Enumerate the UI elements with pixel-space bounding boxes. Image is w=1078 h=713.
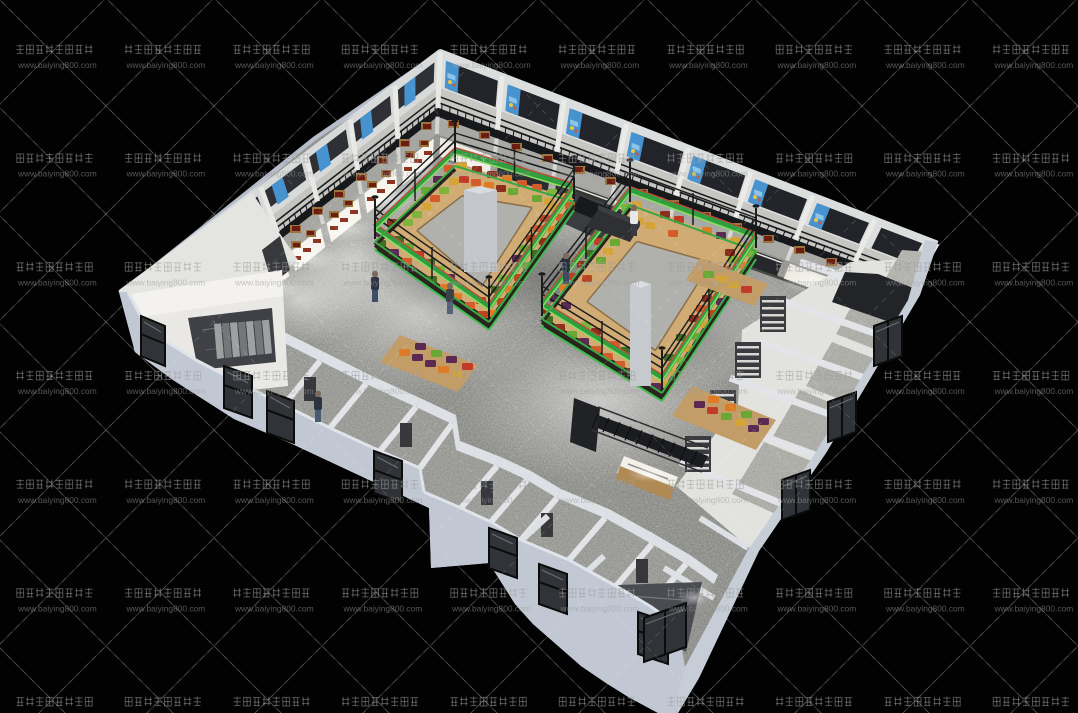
svg-text:www.baiying800.com: www.baiying800.com xyxy=(126,604,206,614)
svg-text:www.baiying800.com: www.baiying800.com xyxy=(17,60,97,70)
svg-text:www.baiying800.com: www.baiying800.com xyxy=(343,60,423,70)
svg-text:www.baiying800.com: www.baiying800.com xyxy=(885,604,965,614)
svg-text:www.baiying800.com: www.baiying800.com xyxy=(994,60,1074,70)
svg-text:www.baiying800.com: www.baiying800.com xyxy=(343,604,423,614)
svg-text:www.baiying800.com: www.baiying800.com xyxy=(668,169,748,179)
svg-text:www.baiying800.com: www.baiying800.com xyxy=(17,495,97,505)
svg-text:www.baiying800.com: www.baiying800.com xyxy=(777,277,857,287)
svg-text:www.baiying800.com: www.baiying800.com xyxy=(560,386,640,396)
svg-text:www.baiying800.com: www.baiying800.com xyxy=(234,169,314,179)
svg-text:www.baiying800.com: www.baiying800.com xyxy=(451,495,531,505)
svg-text:www.baiying800.com: www.baiying800.com xyxy=(451,386,531,396)
svg-text:www.baiying800.com: www.baiying800.com xyxy=(343,277,423,287)
svg-text:www.baiying800.com: www.baiying800.com xyxy=(451,60,531,70)
svg-text:www.baiying800.com: www.baiying800.com xyxy=(777,169,857,179)
svg-text:www.baiying800.com: www.baiying800.com xyxy=(343,169,423,179)
svg-text:www.baiying800.com: www.baiying800.com xyxy=(560,277,640,287)
svg-text:www.baiying800.com: www.baiying800.com xyxy=(17,604,97,614)
svg-text:www.baiying800.com: www.baiying800.com xyxy=(994,495,1074,505)
svg-text:www.baiying800.com: www.baiying800.com xyxy=(994,169,1074,179)
svg-text:www.baiying800.com: www.baiying800.com xyxy=(668,60,748,70)
svg-text:www.baiying800.com: www.baiying800.com xyxy=(17,277,97,287)
svg-text:www.baiying800.com: www.baiying800.com xyxy=(668,277,748,287)
svg-text:www.baiying800.com: www.baiying800.com xyxy=(17,386,97,396)
svg-text:www.baiying800.com: www.baiying800.com xyxy=(343,386,423,396)
svg-text:www.baiying800.com: www.baiying800.com xyxy=(668,386,748,396)
svg-text:www.baiying800.com: www.baiying800.com xyxy=(343,495,423,505)
svg-text:www.baiying800.com: www.baiying800.com xyxy=(885,277,965,287)
svg-text:www.baiying800.com: www.baiying800.com xyxy=(234,495,314,505)
svg-text:www.baiying800.com: www.baiying800.com xyxy=(994,604,1074,614)
svg-text:www.baiying800.com: www.baiying800.com xyxy=(234,386,314,396)
svg-text:www.baiying800.com: www.baiying800.com xyxy=(126,277,206,287)
svg-text:www.baiying800.com: www.baiying800.com xyxy=(126,60,206,70)
svg-text:www.baiying800.com: www.baiying800.com xyxy=(885,169,965,179)
svg-text:www.baiying800.com: www.baiying800.com xyxy=(668,495,748,505)
svg-text:www.baiying800.com: www.baiying800.com xyxy=(777,60,857,70)
svg-text:www.baiying800.com: www.baiying800.com xyxy=(777,386,857,396)
svg-text:www.baiying800.com: www.baiying800.com xyxy=(560,169,640,179)
svg-text:www.baiying800.com: www.baiying800.com xyxy=(234,604,314,614)
svg-text:www.baiying800.com: www.baiying800.com xyxy=(126,386,206,396)
svg-text:www.baiying800.com: www.baiying800.com xyxy=(126,495,206,505)
svg-text:www.baiying800.com: www.baiying800.com xyxy=(560,495,640,505)
svg-text:www.baiying800.com: www.baiying800.com xyxy=(885,60,965,70)
svg-text:www.baiying800.com: www.baiying800.com xyxy=(17,169,97,179)
svg-text:www.baiying800.com: www.baiying800.com xyxy=(126,169,206,179)
svg-text:www.baiying800.com: www.baiying800.com xyxy=(451,169,531,179)
svg-text:www.baiying800.com: www.baiying800.com xyxy=(234,277,314,287)
svg-text:www.baiying800.com: www.baiying800.com xyxy=(234,60,314,70)
svg-text:www.baiying800.com: www.baiying800.com xyxy=(451,604,531,614)
svg-text:www.baiying800.com: www.baiying800.com xyxy=(451,277,531,287)
svg-text:www.baiying800.com: www.baiying800.com xyxy=(560,60,640,70)
